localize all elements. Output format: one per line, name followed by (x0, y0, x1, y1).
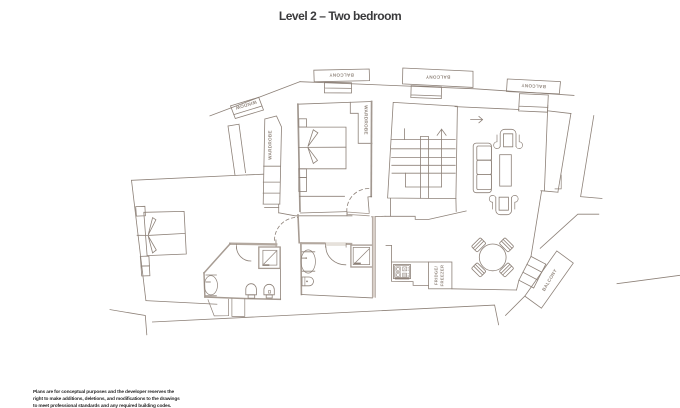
svg-text:FREEZER: FREEZER (440, 265, 445, 287)
svg-text:BALCONY: BALCONY (426, 75, 451, 80)
svg-text:WARDROBE: WARDROBE (268, 130, 273, 160)
svg-text:BALCONY: BALCONY (521, 83, 546, 89)
svg-text:WARDROBE: WARDROBE (364, 105, 369, 135)
svg-text:FRIDGE/: FRIDGE/ (434, 265, 439, 285)
svg-text:BALCONY: BALCONY (329, 73, 354, 78)
